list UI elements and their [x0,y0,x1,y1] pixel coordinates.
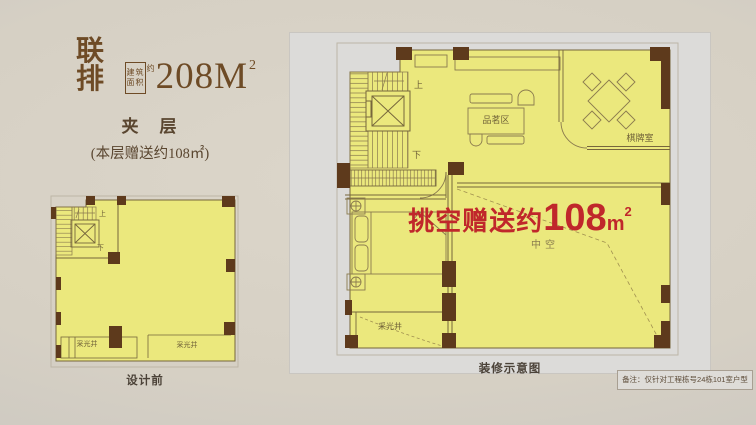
void-number: 108 [543,197,606,240]
void-prefix: 挑空赠送约 [408,201,543,238]
floor-name: 夹 层 [85,112,215,137]
area-box-line1: 建筑 [126,68,144,78]
void-unit: m [607,213,625,236]
tea-area-label: 品茗区 [468,116,524,125]
area-approx-char: 约 [147,63,155,74]
lightwell-right-label: 采光井 [162,342,212,349]
elevator [71,220,99,247]
area-box-line2: 面积 [126,78,144,88]
up-label: 上 [99,211,106,218]
right-plan-caption: 装修示意图 [370,360,650,376]
void-bonus-text: 挑空赠送约108m2 [350,197,690,240]
series-name: 联排 [76,38,121,94]
plan-before-design: 上 下 采光井 采光井 [45,195,240,370]
elevator [366,91,410,131]
floorplan-poster: 联排 建筑 面积 约 208M 2 夹 层 (本层赠送约108㎡) [0,0,756,425]
down-label: 下 [412,151,421,160]
wardrobe [348,170,436,186]
up-label: 上 [414,81,423,90]
bonus-area-note: (本层赠送约108㎡) [52,142,248,163]
plan-decorated: 上 下 品茗区 棋牌室 挑空赠送约108m2 中空 采光井 装修示意图 [290,33,710,373]
lightwell-label: 采光井 [360,323,420,331]
lightwell-left-label: 采光井 [62,341,112,348]
down-label: 下 [97,245,104,252]
chess-room-label: 棋牌室 [610,134,670,143]
area-approx-box: 建筑 面积 [125,62,145,94]
area-value: 208M [156,61,248,94]
hollow-label: 中空 [505,236,585,251]
unit-title: 联排 建筑 面积 约 208M 2 [76,50,256,94]
area-superscript: 2 [249,58,256,74]
left-plan-caption: 设计前 [100,372,190,388]
void-superscript: 2 [624,204,631,219]
disclaimer-note: 备注：仅针对工程栋号24栋101室户型 [617,370,753,390]
